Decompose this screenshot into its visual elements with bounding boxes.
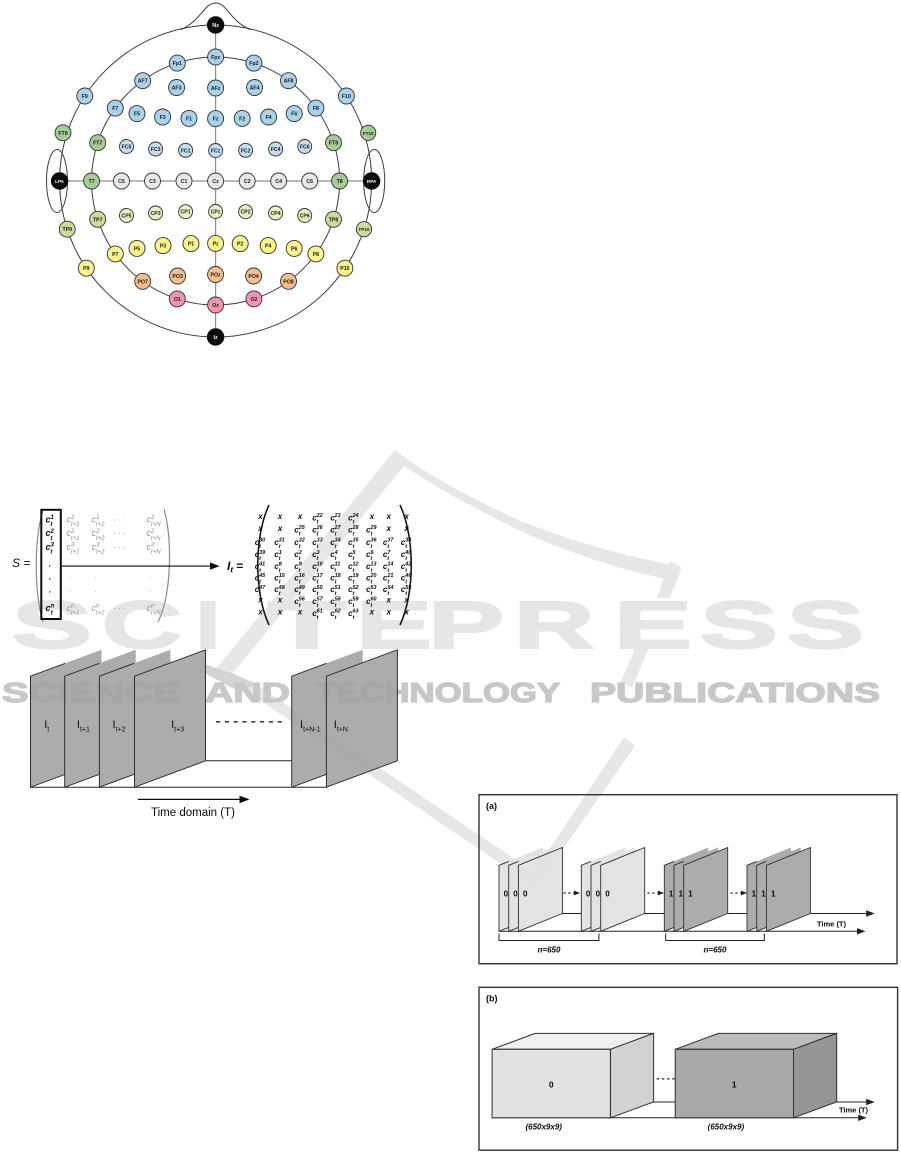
svg-text:Time (T): Time (T) <box>817 920 847 929</box>
svg-text:.: . <box>95 572 97 581</box>
svg-text:PO7: PO7 <box>138 279 148 285</box>
svg-text:F4: F4 <box>266 115 272 121</box>
svg-text:x: x <box>403 524 409 533</box>
svg-text:Nz: Nz <box>212 23 219 29</box>
svg-text:PO4: PO4 <box>248 274 258 280</box>
svg-text:x: x <box>385 512 391 521</box>
svg-text:P3: P3 <box>160 244 166 250</box>
svg-text:C6: C6 <box>306 179 313 185</box>
svg-text:C4: C4 <box>275 179 282 185</box>
svg-text:Time domain (T): Time domain (T) <box>151 807 235 819</box>
svg-text:x: x <box>297 607 303 616</box>
svg-text:.: . <box>49 572 51 582</box>
svg-text:1: 1 <box>688 890 693 899</box>
svg-text:S: S <box>787 588 864 663</box>
svg-text:x: x <box>385 524 391 533</box>
svg-text:x: x <box>385 595 391 604</box>
svg-text:F8: F8 <box>313 106 319 112</box>
svg-text:FC3: FC3 <box>151 147 161 153</box>
svg-text:x: x <box>403 512 409 521</box>
svg-text:Iz: Iz <box>213 335 217 341</box>
svg-text:AF3: AF3 <box>172 86 182 92</box>
svg-text:CP3: CP3 <box>151 211 161 217</box>
svg-text:. . .: . . . <box>114 541 125 550</box>
svg-text:FT8: FT8 <box>329 141 338 147</box>
svg-text:FCz: FCz <box>211 149 221 155</box>
svg-text:O1: O1 <box>174 297 181 303</box>
svg-text:P6: P6 <box>291 246 297 252</box>
svg-text:F6: F6 <box>291 112 297 118</box>
svg-text:Oz: Oz <box>212 303 219 309</box>
svg-text:C1: C1 <box>181 179 188 185</box>
svg-text:0: 0 <box>504 890 509 899</box>
svg-text:T7: T7 <box>89 179 95 185</box>
svg-text:0: 0 <box>605 890 610 899</box>
svg-text:F1: F1 <box>186 116 192 122</box>
svg-text:POz: POz <box>211 273 221 279</box>
svg-text:1: 1 <box>679 890 684 899</box>
svg-text:.: . <box>70 572 72 581</box>
svg-text:P2: P2 <box>237 242 243 248</box>
svg-text:x: x <box>257 607 263 616</box>
svg-text:AF7: AF7 <box>138 79 148 85</box>
svg-text:FC1: FC1 <box>181 148 191 154</box>
svg-text:P9: P9 <box>83 266 89 272</box>
svg-text:P8: P8 <box>313 252 319 258</box>
svg-text:TP10: TP10 <box>358 227 370 232</box>
svg-text:PO3: PO3 <box>172 274 182 280</box>
svg-text:TP7: TP7 <box>93 217 103 223</box>
svg-text:P: P <box>428 588 504 663</box>
svg-text:0: 0 <box>523 890 528 899</box>
svg-text:Fz: Fz <box>213 117 219 123</box>
svg-text:1: 1 <box>771 890 776 899</box>
svg-text:(650x9x9): (650x9x9) <box>708 1123 745 1132</box>
svg-text:1: 1 <box>669 890 674 899</box>
svg-text:n=650: n=650 <box>538 946 561 955</box>
svg-text:0: 0 <box>586 890 591 899</box>
svg-text:R: R <box>514 588 594 663</box>
svg-text:F2: F2 <box>239 116 245 122</box>
svg-text:x: x <box>277 512 283 521</box>
svg-text:CP1: CP1 <box>181 210 191 216</box>
svg-text:P1: P1 <box>188 242 194 248</box>
svg-text:1: 1 <box>732 1080 737 1090</box>
svg-text:P5: P5 <box>134 246 140 252</box>
svg-text:x: x <box>403 595 409 604</box>
svg-text:.: . <box>70 585 72 594</box>
svg-text:P7: P7 <box>112 252 118 258</box>
svg-text:C3: C3 <box>149 179 156 185</box>
svg-text:CP4: CP4 <box>271 211 281 217</box>
svg-text:Cz: Cz <box>212 179 219 185</box>
svg-text:T8: T8 <box>337 179 343 185</box>
svg-text:.: . <box>150 585 152 594</box>
svg-text:x: x <box>277 524 283 533</box>
svg-text:x: x <box>277 607 283 616</box>
svg-text:.: . <box>150 572 152 581</box>
svg-text:x: x <box>257 595 263 604</box>
svg-text:x: x <box>385 607 391 616</box>
svg-text:F5: F5 <box>134 112 140 118</box>
svg-text:.: . <box>49 559 51 569</box>
svg-text:LPA: LPA <box>55 179 65 184</box>
svg-text:FC2: FC2 <box>241 148 251 154</box>
svg-text:PUBLICATIONS: PUBLICATIONS <box>590 677 880 708</box>
svg-text:x: x <box>369 607 375 616</box>
svg-text:(a): (a) <box>486 801 497 811</box>
svg-text:AFz: AFz <box>211 86 221 92</box>
svg-text:FC6: FC6 <box>300 145 310 151</box>
svg-text:S =: S = <box>12 556 30 570</box>
svg-text:. . .: . . . <box>114 602 125 611</box>
svg-text:1: 1 <box>752 890 757 899</box>
svg-text:C2: C2 <box>244 179 251 185</box>
svg-text:. . .: . . . <box>114 514 125 523</box>
svg-text:0: 0 <box>596 890 601 899</box>
svg-text:FT10: FT10 <box>363 131 374 136</box>
svg-text:C5: C5 <box>118 179 125 185</box>
svg-text:RPA: RPA <box>367 179 377 184</box>
svg-text:S: S <box>700 588 778 663</box>
svg-text:(650x9x9): (650x9x9) <box>525 1123 562 1132</box>
svg-text:CPz: CPz <box>211 210 221 216</box>
svg-text:It =: It = <box>227 559 243 575</box>
svg-text:CP6: CP6 <box>300 214 310 220</box>
svg-text:FC5: FC5 <box>122 145 132 151</box>
svg-text:AF4: AF4 <box>250 86 260 92</box>
svg-text:x: x <box>257 524 263 533</box>
svg-text:1: 1 <box>761 890 766 899</box>
svg-text:TP8: TP8 <box>329 217 339 223</box>
svg-text:.: . <box>95 585 97 594</box>
svg-text:CP2: CP2 <box>241 210 251 216</box>
svg-text:AF8: AF8 <box>284 79 294 85</box>
svg-text:Fp2: Fp2 <box>249 61 258 67</box>
svg-text:P4: P4 <box>265 244 271 250</box>
svg-text:AND: AND <box>205 677 290 708</box>
svg-text:x: x <box>403 607 409 616</box>
svg-text:x: x <box>369 512 375 521</box>
svg-text:E: E <box>614 588 692 663</box>
svg-text:Time (T): Time (T) <box>839 1106 869 1115</box>
svg-text:FT7: FT7 <box>93 141 102 147</box>
svg-text:.: . <box>49 585 51 595</box>
svg-text:TP9: TP9 <box>62 227 72 233</box>
svg-text:. . .: . . . <box>114 527 125 536</box>
svg-text:Fpz: Fpz <box>211 55 220 61</box>
svg-text:n=650: n=650 <box>704 946 727 955</box>
svg-text:Pz: Pz <box>213 241 219 247</box>
svg-text:x: x <box>257 512 263 521</box>
svg-text:O2: O2 <box>250 297 257 303</box>
svg-text:P10: P10 <box>340 266 349 272</box>
svg-text:FC4: FC4 <box>271 147 281 153</box>
svg-text:PO8: PO8 <box>283 279 293 285</box>
svg-text:x: x <box>277 595 283 604</box>
svg-text:F3: F3 <box>160 115 166 121</box>
svg-text:F7: F7 <box>112 106 118 112</box>
svg-text:S: S <box>12 588 92 663</box>
svg-text:CP5: CP5 <box>121 214 131 220</box>
svg-text:Fp1: Fp1 <box>173 61 182 67</box>
svg-text:FT9: FT9 <box>58 131 67 137</box>
svg-text:0: 0 <box>549 1080 554 1090</box>
svg-text:0: 0 <box>513 890 518 899</box>
svg-text:F9: F9 <box>82 94 88 100</box>
svg-text:(b): (b) <box>486 994 498 1004</box>
svg-text:x: x <box>297 512 303 521</box>
svg-text:F10: F10 <box>342 94 351 100</box>
